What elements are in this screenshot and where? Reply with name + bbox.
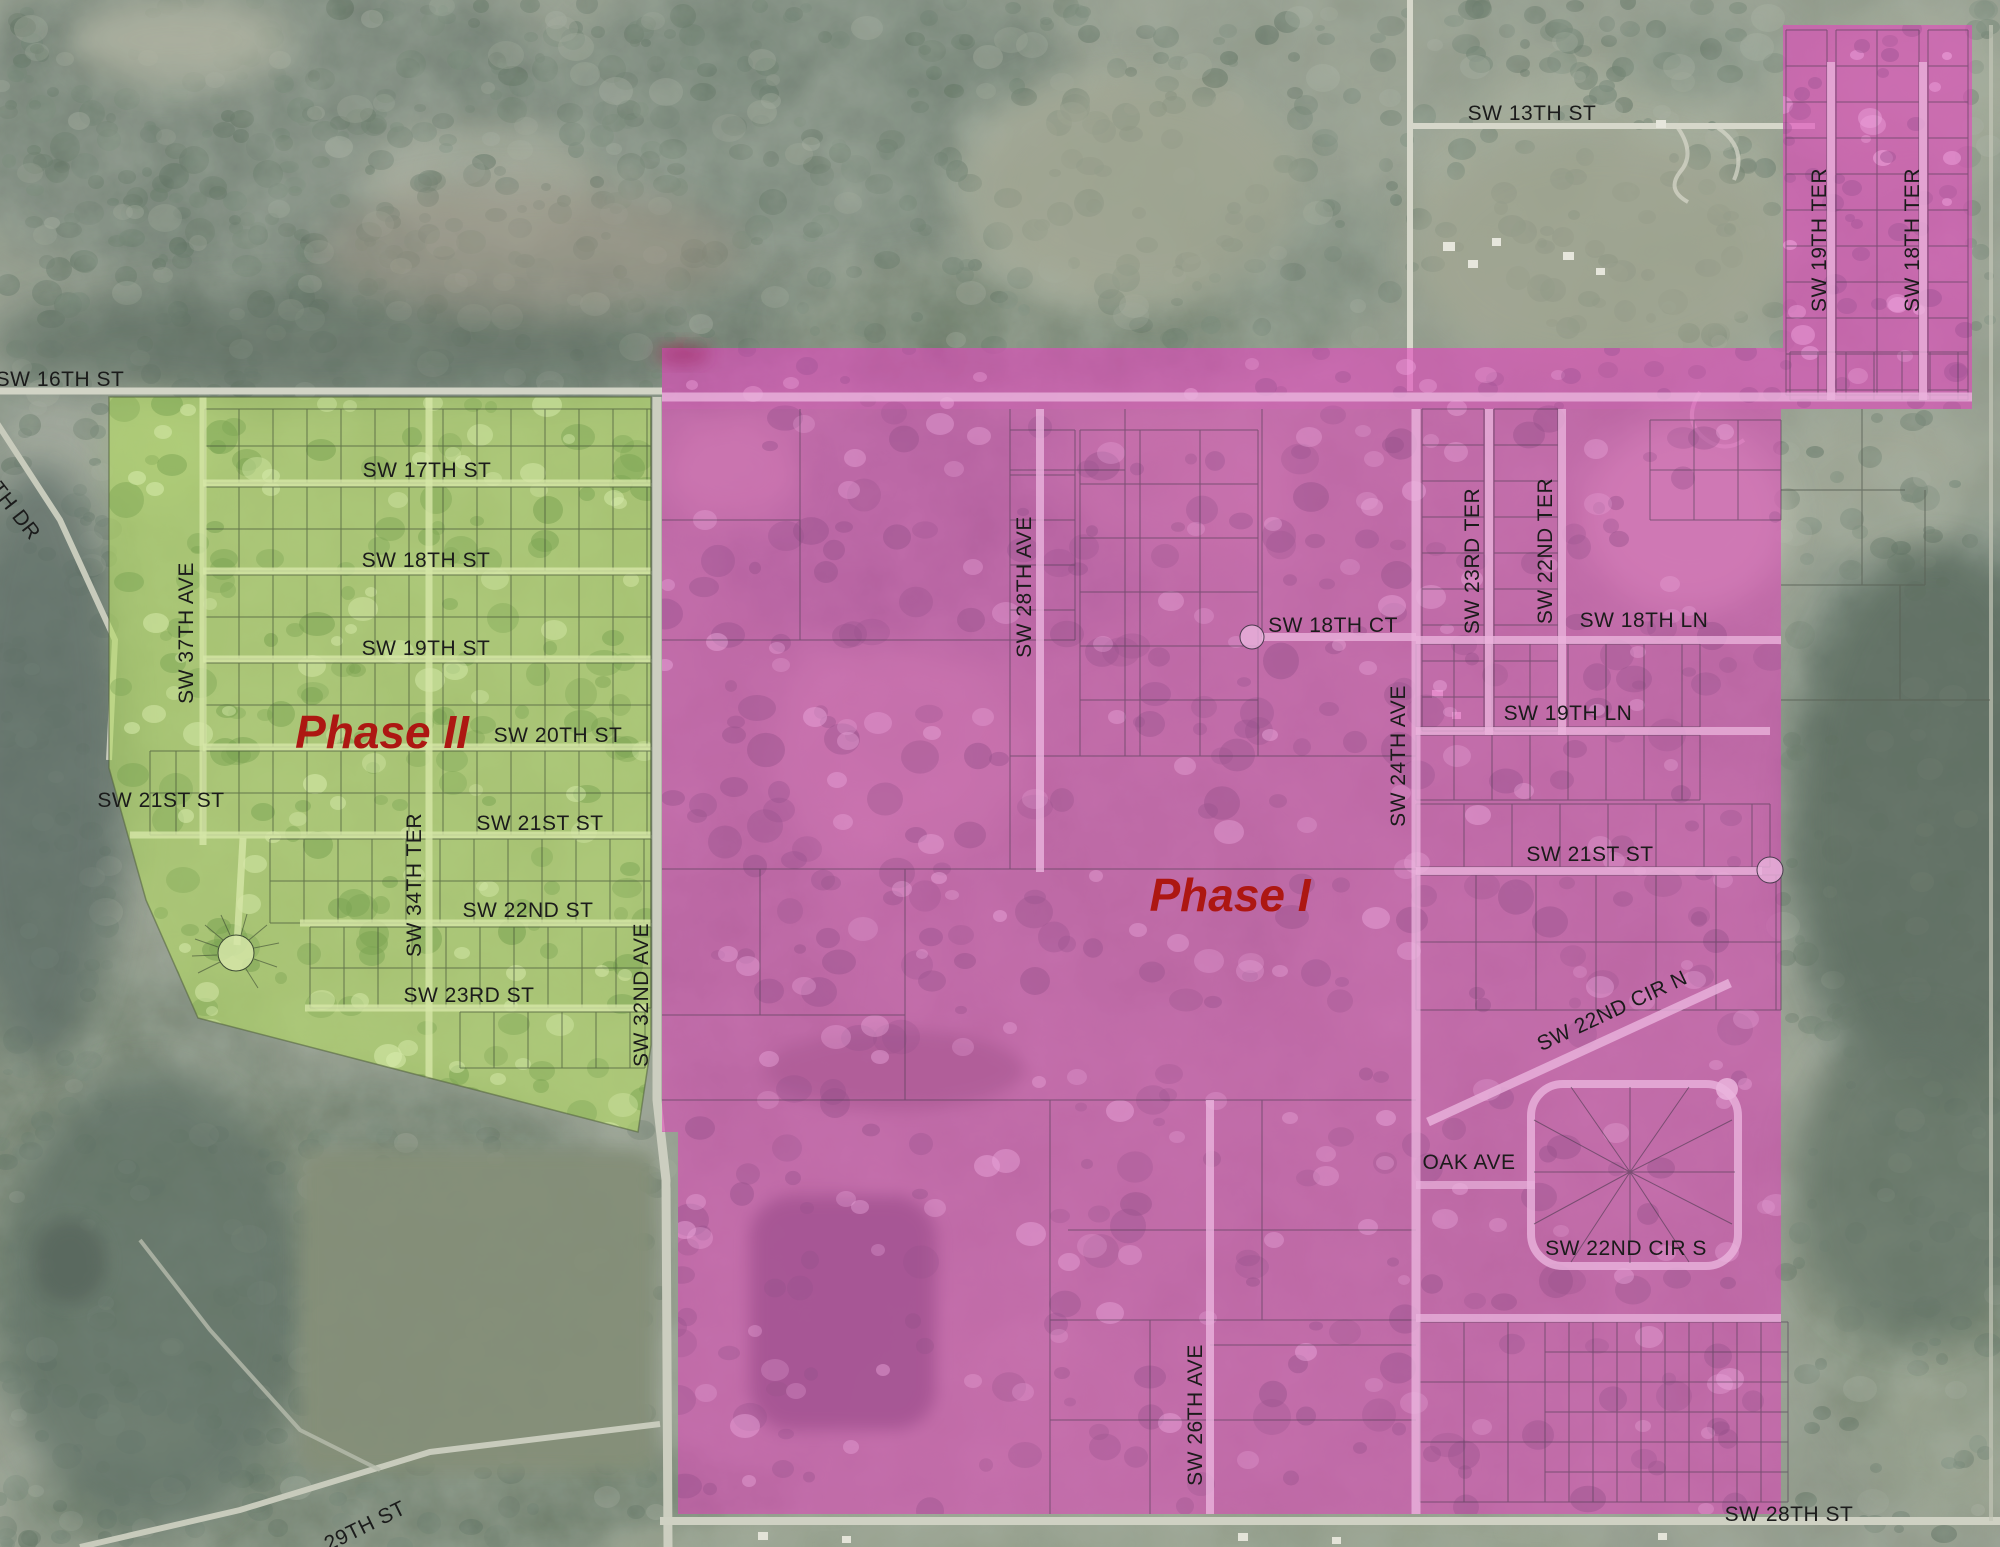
svg-text:SW 21ST ST: SW 21ST ST: [97, 789, 224, 812]
svg-text:SW 23RD TER: SW 23RD TER: [1461, 488, 1484, 634]
svg-text:SW 32ND AVE: SW 32ND AVE: [630, 923, 653, 1067]
svg-text:OAK AVE: OAK AVE: [1423, 1151, 1516, 1174]
svg-text:SW 22ND CIR S: SW 22ND CIR S: [1545, 1237, 1707, 1260]
svg-text:SW 18TH LN: SW 18TH LN: [1580, 609, 1709, 632]
svg-text:SW 19TH ST: SW 19TH ST: [362, 637, 491, 660]
svg-text:SW 21ST ST: SW 21ST ST: [476, 812, 603, 835]
svg-text:SW 26TH AVE: SW 26TH AVE: [1184, 1344, 1207, 1486]
svg-text:SW 34TH TER: SW 34TH TER: [403, 813, 426, 957]
svg-text:SW 21ST ST: SW 21ST ST: [1526, 843, 1653, 866]
svg-text:SW 17TH ST: SW 17TH ST: [363, 459, 492, 482]
svg-text:SW 37TH AVE: SW 37TH AVE: [175, 562, 198, 704]
svg-text:SW 19TH LN: SW 19TH LN: [1504, 702, 1633, 725]
svg-text:SW 20TH ST: SW 20TH ST: [494, 724, 623, 747]
svg-text:SW 18TH TER: SW 18TH TER: [1901, 168, 1924, 312]
svg-text:SW 24TH AVE: SW 24TH AVE: [1387, 685, 1410, 827]
svg-text:SW 18TH ST: SW 18TH ST: [362, 549, 491, 572]
svg-text:Phase I: Phase I: [1149, 869, 1311, 921]
svg-text:SW 22ND TER: SW 22ND TER: [1534, 478, 1557, 624]
svg-text:SW 22ND ST: SW 22ND ST: [462, 899, 593, 922]
svg-text:SW 18TH CT: SW 18TH CT: [1268, 614, 1398, 637]
svg-text:SW 16TH ST: SW 16TH ST: [0, 368, 124, 391]
svg-text:SW 28TH ST: SW 28TH ST: [1725, 1503, 1854, 1526]
svg-text:SW 23RD ST: SW 23RD ST: [403, 984, 534, 1007]
svg-text:SW 28TH AVE: SW 28TH AVE: [1013, 516, 1036, 658]
svg-text:Phase II: Phase II: [295, 706, 470, 758]
svg-text:SW 13TH ST: SW 13TH ST: [1468, 102, 1597, 125]
svg-text:SW 19TH TER: SW 19TH TER: [1808, 168, 1831, 312]
